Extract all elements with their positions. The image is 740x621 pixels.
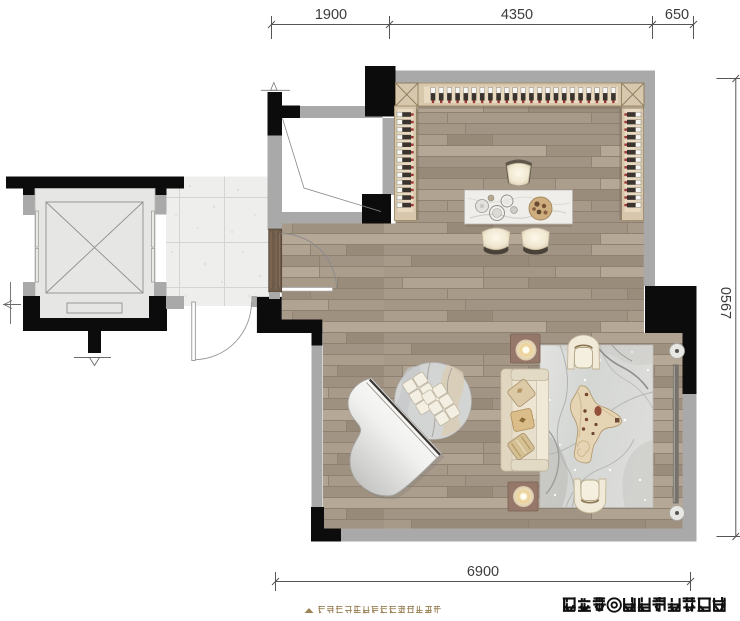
svg-text:650: 650 — [665, 7, 689, 23]
svg-text:4350: 4350 — [501, 7, 533, 23]
svg-text:6900: 6900 — [467, 564, 499, 580]
svg-text:0567: 0567 — [717, 287, 733, 319]
svg-text:1900: 1900 — [315, 7, 347, 23]
